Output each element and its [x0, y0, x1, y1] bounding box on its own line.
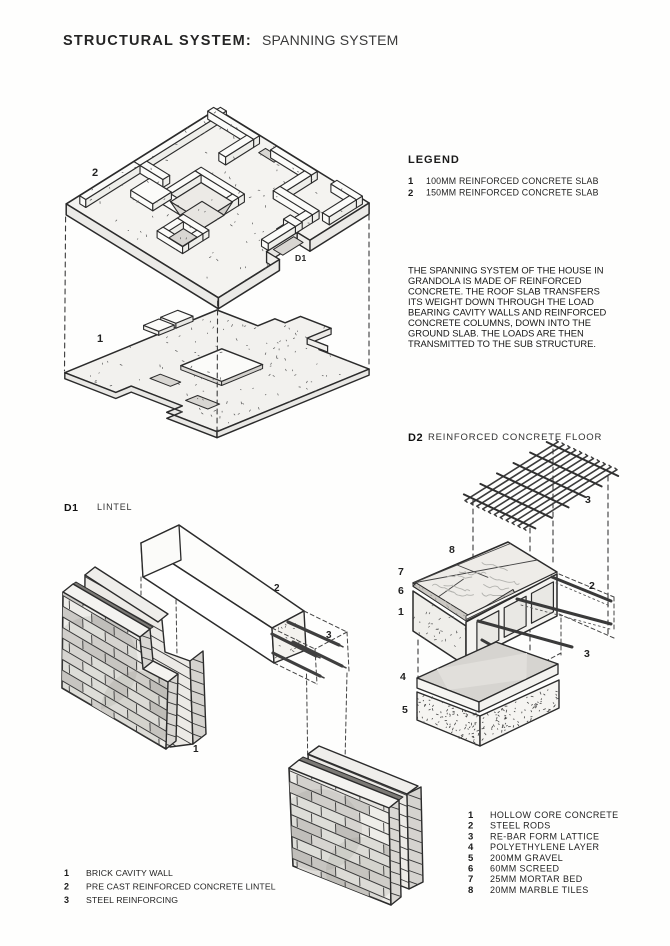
svg-text:2: 2: [274, 583, 280, 594]
svg-text:1: 1: [97, 333, 104, 345]
svg-text:GROUND SLAB. THE LOADS ARE THE: GROUND SLAB. THE LOADS ARE THEN: [408, 328, 584, 339]
svg-text:8: 8: [468, 885, 474, 896]
svg-text:D1: D1: [64, 502, 78, 514]
svg-text:5: 5: [468, 853, 474, 864]
svg-text:CONCRETE. THE ROOF SLAB TRANSF: CONCRETE. THE ROOF SLAB TRANSFERS: [408, 286, 600, 297]
svg-text:3: 3: [64, 895, 70, 905]
svg-text:2: 2: [589, 580, 595, 592]
svg-text:1: 1: [64, 868, 70, 878]
svg-text:D2: D2: [408, 432, 423, 444]
svg-text:7: 7: [398, 566, 404, 578]
svg-text:4: 4: [468, 842, 474, 853]
svg-text:STEEL RODS: STEEL RODS: [490, 821, 551, 831]
svg-text:REINFORCED CONCRETE FLOOR: REINFORCED CONCRETE FLOOR: [428, 432, 602, 443]
svg-text:6: 6: [398, 585, 404, 597]
svg-text:CONCRETE COLUMNS, DOWN INTO TH: CONCRETE COLUMNS, DOWN INTO THE: [408, 317, 591, 328]
svg-text:8: 8: [449, 544, 455, 556]
svg-text:RE-BAR FORM LATTICE: RE-BAR FORM LATTICE: [490, 831, 599, 841]
svg-text:200MM GRAVEL: 200MM GRAVEL: [490, 853, 563, 863]
svg-text:6: 6: [468, 864, 474, 875]
svg-text:HOLLOW CORE CONCRETE: HOLLOW CORE CONCRETE: [490, 810, 619, 820]
svg-text:LINTEL: LINTEL: [97, 502, 132, 512]
svg-text:3: 3: [585, 494, 591, 506]
svg-text:100MM REINFORCED CONCRETE SLAB: 100MM REINFORCED CONCRETE SLAB: [426, 176, 599, 186]
svg-text:3: 3: [326, 630, 332, 641]
svg-text:1: 1: [193, 744, 199, 755]
svg-text:BRICK CAVITY WALL: BRICK CAVITY WALL: [86, 868, 173, 878]
svg-text:2: 2: [468, 821, 474, 832]
svg-text:STEEL REINFORCING: STEEL REINFORCING: [86, 895, 178, 905]
svg-text:60MM SCREED: 60MM SCREED: [490, 864, 560, 874]
svg-text:3: 3: [584, 648, 590, 660]
svg-text:POLYETHYLENE LAYER: POLYETHYLENE LAYER: [490, 842, 600, 852]
svg-text:7: 7: [468, 874, 474, 885]
svg-text:150MM REINFORCED CONCRETE SLAB: 150MM REINFORCED CONCRETE SLAB: [426, 188, 599, 198]
svg-text:3: 3: [468, 831, 474, 842]
svg-text:1: 1: [408, 176, 414, 187]
svg-text:2: 2: [64, 882, 70, 892]
svg-text:GRANDOLA IS MADE OF REINFORCED: GRANDOLA IS MADE OF REINFORCED: [408, 275, 582, 286]
svg-text:PRE CAST REINFORCED CONCRETE L: PRE CAST REINFORCED CONCRETE LINTEL: [86, 882, 276, 892]
svg-text:2: 2: [408, 188, 414, 199]
svg-text:20MM MARBLE TILES: 20MM MARBLE TILES: [490, 885, 589, 895]
svg-text:4: 4: [400, 671, 406, 683]
svg-text:1: 1: [398, 606, 404, 618]
svg-text:25MM MORTAR BED: 25MM MORTAR BED: [490, 874, 583, 884]
svg-text:2: 2: [92, 167, 99, 179]
svg-text:STRUCTURAL SYSTEM:: STRUCTURAL SYSTEM:: [63, 33, 252, 49]
svg-text:ITS WEIGHT DOWN THROUGH THE LO: ITS WEIGHT DOWN THROUGH THE LOAD: [408, 296, 594, 307]
svg-text:1: 1: [468, 810, 474, 821]
svg-text:LEGEND: LEGEND: [408, 154, 460, 166]
svg-text:TRANSMITTED TO THE SUB STRUCTU: TRANSMITTED TO THE SUB STRUCTURE.: [408, 338, 596, 349]
svg-text:SPANNING SYSTEM: SPANNING SYSTEM: [262, 32, 399, 48]
svg-text:D1: D1: [295, 253, 306, 263]
svg-text:THE SPANNING SYSTEM OF THE HOU: THE SPANNING SYSTEM OF THE HOUSE IN: [408, 265, 604, 276]
svg-text:BEARING CAVITY WALLS AND REINF: BEARING CAVITY WALLS AND REINFORCED: [408, 307, 607, 318]
svg-text:5: 5: [402, 704, 408, 716]
